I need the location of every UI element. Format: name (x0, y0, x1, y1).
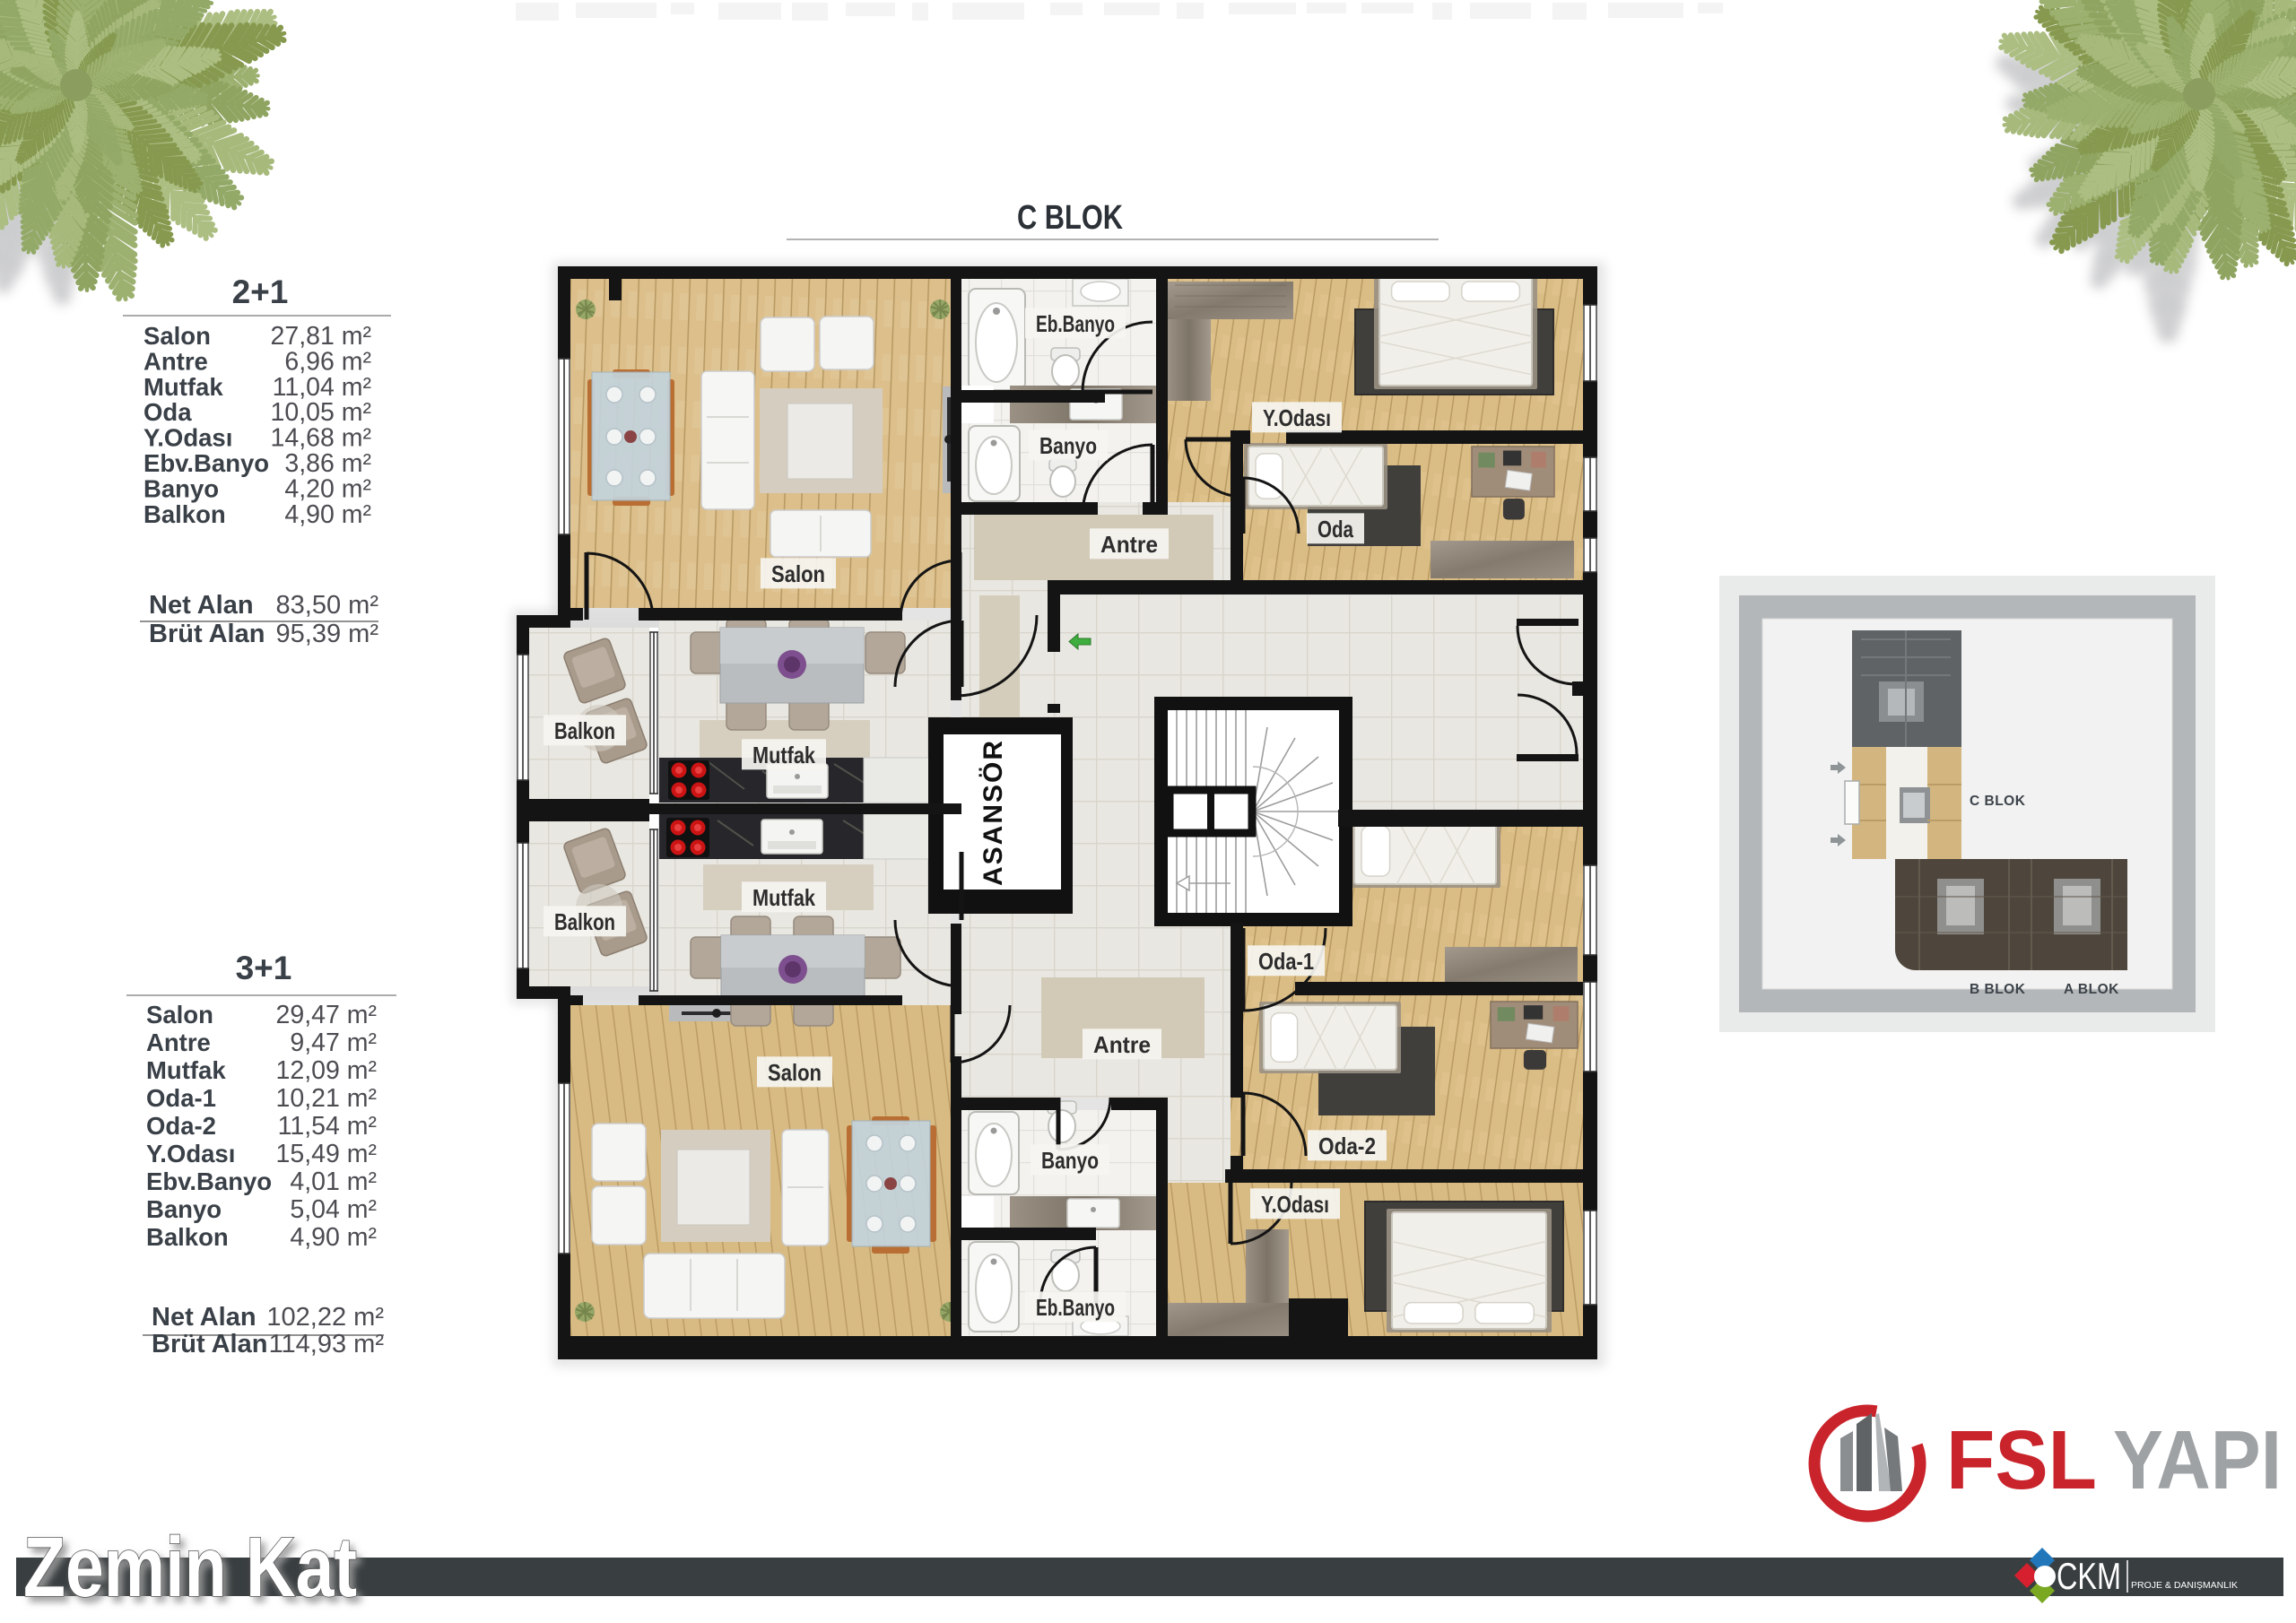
svg-text:Mutfak: Mutfak (146, 1056, 226, 1084)
svg-text:Banyo: Banyo (143, 474, 219, 502)
svg-text:Y.Odası: Y.Odası (1261, 1191, 1329, 1218)
svg-text:2+1: 2+1 (232, 273, 289, 310)
svg-text:Salon: Salon (771, 560, 825, 587)
svg-text:Oda: Oda (1318, 516, 1353, 542)
svg-text:Mutfak: Mutfak (752, 742, 815, 768)
svg-text:Antre: Antre (1093, 1031, 1151, 1058)
svg-text:9,47 m²: 9,47 m² (290, 1028, 377, 1057)
svg-text:B BLOK: B BLOK (1970, 982, 2026, 997)
svg-text:Mutfak: Mutfak (143, 373, 223, 401)
svg-text:102,22 m²: 102,22 m² (266, 1303, 384, 1332)
svg-text:95,39 m²: 95,39 m² (276, 620, 379, 648)
svg-text:Banyo: Banyo (146, 1195, 222, 1223)
svg-text:A BLOK: A BLOK (2064, 982, 2119, 997)
svg-text:CKM: CKM (2057, 1555, 2121, 1597)
svg-text:Antre: Antre (146, 1028, 211, 1056)
svg-text:ASANSÖR: ASANSÖR (978, 739, 1008, 886)
svg-text:83,50 m²: 83,50 m² (276, 591, 379, 620)
svg-text:10,05 m²: 10,05 m² (271, 398, 371, 427)
svg-text:11,54 m²: 11,54 m² (278, 1112, 377, 1141)
svg-text:Antre: Antre (1100, 531, 1158, 558)
svg-text:C BLOK: C BLOK (1017, 199, 1123, 237)
svg-text:Antre: Antre (143, 347, 208, 375)
svg-text:4,01 m²: 4,01 m² (290, 1167, 377, 1196)
svg-text:Y.Odası: Y.Odası (146, 1140, 235, 1167)
svg-text:Ebv.Banyo: Ebv.Banyo (146, 1167, 272, 1195)
svg-text:29,47 m²: 29,47 m² (276, 1001, 377, 1029)
svg-text:Balkon: Balkon (143, 500, 226, 528)
svg-text:Salon: Salon (768, 1059, 822, 1086)
svg-text:Net Alan: Net Alan (149, 591, 254, 620)
svg-text:11,04 m²: 11,04 m² (273, 373, 371, 402)
svg-text:Salon: Salon (143, 322, 211, 350)
svg-text:Banyo: Banyo (1039, 432, 1097, 459)
svg-text:12,09 m²: 12,09 m² (276, 1056, 377, 1085)
svg-text:Brüt Alan: Brüt Alan (149, 620, 265, 648)
svg-text:Eb.Banyo: Eb.Banyo (1036, 310, 1115, 337)
svg-text:Balkon: Balkon (146, 1223, 229, 1251)
svg-text:YAPI: YAPI (2113, 1413, 2282, 1506)
svg-text:Oda: Oda (143, 398, 192, 426)
svg-text:Brüt Alan: Brüt Alan (152, 1330, 267, 1358)
svg-text:PROJE & DANIŞMANLIK: PROJE & DANIŞMANLIK (2131, 1580, 2238, 1591)
svg-text:4,90 m²: 4,90 m² (290, 1223, 377, 1252)
svg-text:114,93 m²: 114,93 m² (269, 1330, 385, 1358)
svg-text:15,49 m²: 15,49 m² (276, 1140, 377, 1168)
svg-text:Oda-1: Oda-1 (146, 1084, 216, 1112)
svg-text:3,86 m²: 3,86 m² (284, 449, 371, 478)
svg-text:Balkon: Balkon (554, 717, 615, 744)
svg-text:Net Alan: Net Alan (152, 1303, 257, 1332)
svg-text:Eb.Banyo: Eb.Banyo (1036, 1294, 1115, 1321)
svg-text:Zemin Kat: Zemin Kat (23, 1520, 357, 1615)
svg-text:Y.Odası: Y.Odası (143, 424, 232, 452)
svg-text:Oda-2: Oda-2 (1318, 1133, 1376, 1159)
svg-text:Oda-1: Oda-1 (1258, 948, 1314, 975)
svg-text:Banyo: Banyo (1041, 1147, 1099, 1174)
svg-text:6,96 m²: 6,96 m² (284, 347, 371, 376)
svg-text:3+1: 3+1 (236, 950, 292, 986)
svg-text:Mutfak: Mutfak (752, 884, 815, 911)
svg-text:5,04 m²: 5,04 m² (290, 1195, 377, 1224)
svg-text:Y.Odası: Y.Odası (1263, 404, 1331, 431)
svg-text:Ebv.Banyo: Ebv.Banyo (143, 449, 269, 477)
svg-text:FSL: FSL (1946, 1413, 2097, 1506)
svg-text:10,21 m²: 10,21 m² (276, 1084, 377, 1113)
svg-text:4,20 m²: 4,20 m² (284, 474, 371, 503)
svg-text:C BLOK: C BLOK (1970, 794, 2026, 809)
svg-text:Oda-2: Oda-2 (146, 1112, 216, 1140)
svg-text:4,90 m²: 4,90 m² (284, 500, 371, 529)
svg-text:Salon: Salon (146, 1001, 213, 1028)
svg-text:27,81 m²: 27,81 m² (271, 322, 371, 351)
svg-text:Balkon: Balkon (554, 908, 615, 935)
svg-text:14,68 m²: 14,68 m² (271, 424, 371, 453)
